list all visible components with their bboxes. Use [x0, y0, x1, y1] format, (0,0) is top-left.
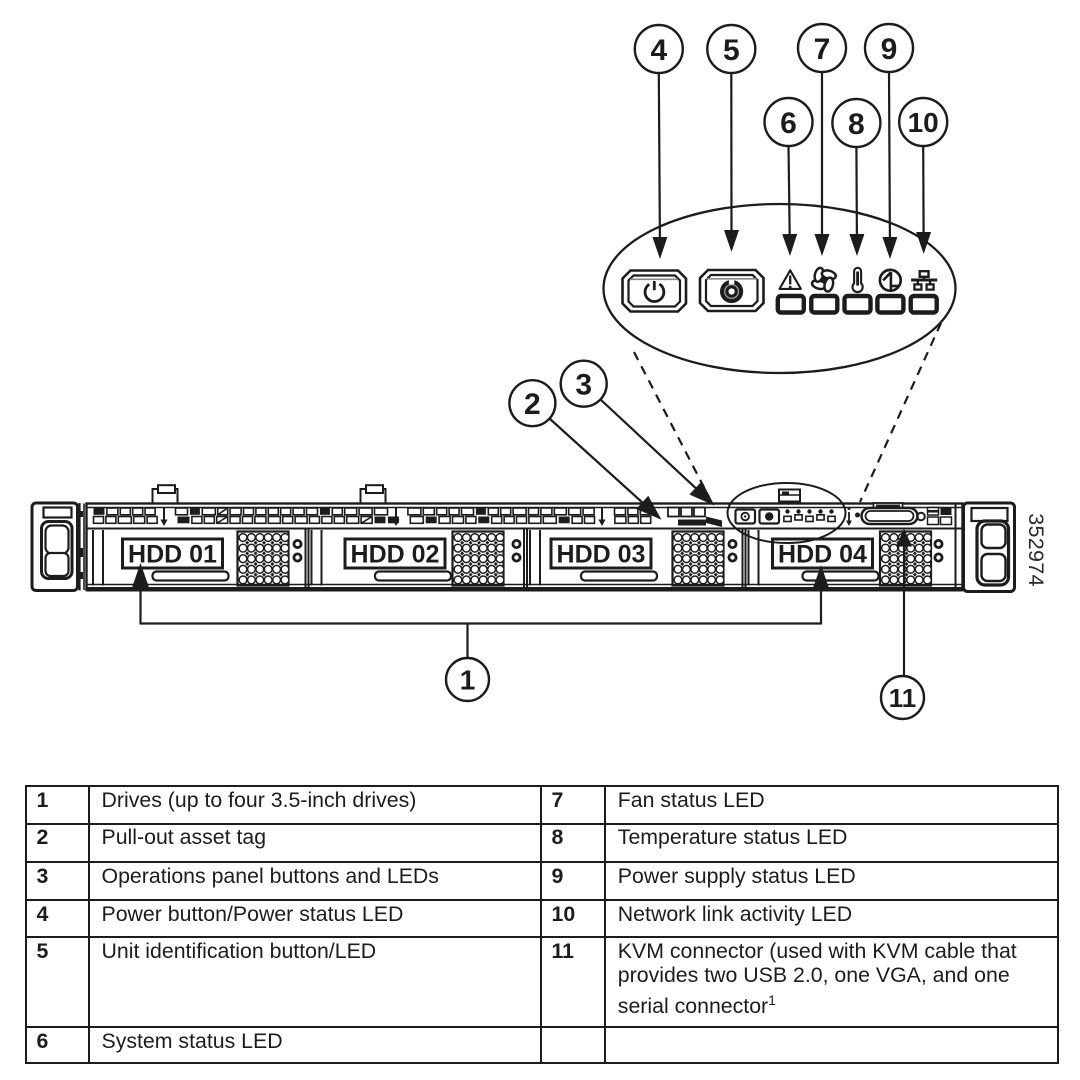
- svg-text:HDD 03: HDD 03: [557, 541, 646, 569]
- svg-text:10: 10: [908, 107, 939, 138]
- svg-text:352974: 352974: [1024, 513, 1048, 587]
- svg-text:HDD 02: HDD 02: [351, 541, 440, 569]
- svg-text:3: 3: [575, 369, 592, 402]
- svg-text:7: 7: [814, 33, 831, 66]
- svg-text:8: 8: [848, 108, 865, 141]
- svg-text:5: 5: [723, 34, 740, 67]
- svg-text:6: 6: [780, 107, 797, 140]
- svg-text:2: 2: [524, 388, 541, 421]
- svg-text:HDD 04: HDD 04: [778, 541, 867, 569]
- svg-text:9: 9: [881, 33, 898, 66]
- svg-text:1: 1: [460, 665, 476, 696]
- svg-text:HDD 01: HDD 01: [128, 541, 217, 569]
- svg-text:4: 4: [650, 34, 667, 67]
- svg-text:11: 11: [889, 683, 917, 713]
